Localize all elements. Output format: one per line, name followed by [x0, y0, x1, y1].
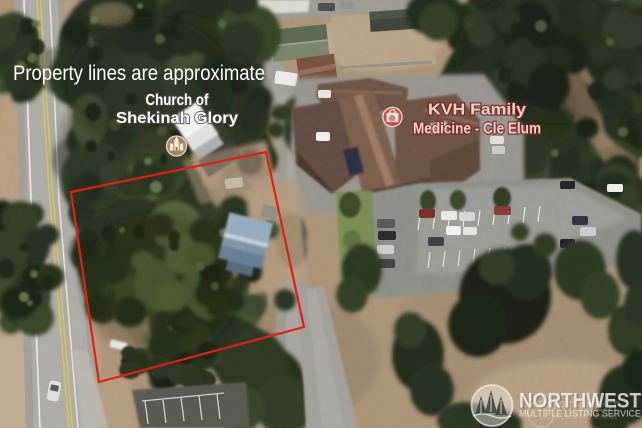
svg-text:Property lines are approximate: Property lines are approximate: [13, 62, 265, 85]
svg-text:Shekinah Glory: Shekinah Glory: [116, 110, 238, 127]
svg-text:Church of: Church of: [146, 92, 210, 109]
svg-text:KVH Family: KVH Family: [428, 102, 526, 119]
svg-text:Medicine - Cle Elum: Medicine - Cle Elum: [413, 121, 541, 138]
svg-text:MULTIPLE LISTING SERVICE: MULTIPLE LISTING SERVICE: [519, 409, 641, 419]
